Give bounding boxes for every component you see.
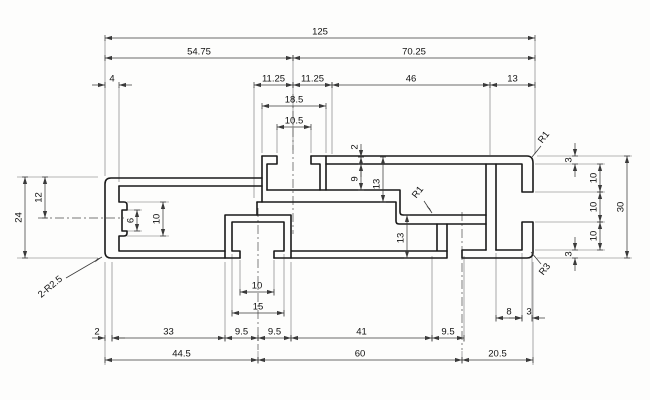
dimension-arrow [286, 83, 293, 87]
dimension-arrow [218, 336, 225, 340]
dim-label-13: 13 [507, 74, 518, 85]
dimension-arrow [598, 222, 602, 229]
radius-label-R1: R1 [410, 184, 426, 200]
dim-label-10: 10 [252, 281, 263, 292]
radius-label-2-R2.5: 2-R2.5 [36, 274, 65, 301]
dim-label-10: 10 [152, 214, 163, 225]
dimension-arrow [432, 336, 439, 340]
dimension-arrow [359, 157, 363, 164]
dimension-arrow [526, 358, 533, 362]
dim-label-10: 10 [589, 231, 600, 242]
dim-label-20.5: 20.5 [488, 349, 507, 360]
dim-label-3: 3 [564, 157, 575, 162]
dimension-arrow [43, 177, 47, 184]
dim-label-44.5: 44.5 [172, 349, 191, 360]
dimension-arrow [258, 336, 265, 340]
dimension-arrow [267, 290, 274, 294]
dimension-arrow [325, 83, 332, 87]
dimension-arrow [598, 243, 602, 250]
dimension-arrow [232, 311, 239, 315]
dimension-arrow [23, 251, 27, 258]
dimension-arrow [455, 358, 462, 362]
dimension-arrow [254, 83, 261, 87]
dimension-arrow [304, 125, 311, 129]
dim-label-9: 9 [350, 176, 361, 181]
dim-label-11.25: 11.25 [262, 74, 285, 85]
dimension-arrow [405, 215, 409, 222]
dimension-arrow [515, 316, 522, 320]
dimension-arrow [277, 311, 284, 315]
profile-outline [105, 156, 533, 258]
radius-label-R3: R3 [537, 261, 553, 277]
dimension-arrow [293, 83, 300, 87]
right-foot-and-bar [462, 222, 533, 258]
profile-drawing-canvas: 12554.7570.25411.2511.25461318.510.51015… [0, 0, 650, 400]
dimension-arrow [135, 210, 139, 217]
dim-label-2: 2 [94, 327, 99, 338]
dimension-arrow [359, 183, 363, 190]
tslot-left-lip [262, 156, 277, 190]
dimension-arrow [573, 149, 577, 156]
dim-label-15: 15 [253, 302, 264, 313]
dim-label-33: 33 [163, 327, 174, 338]
dimension-arrow [225, 336, 232, 340]
dimension-arrow [291, 336, 298, 340]
dimension-arrow [332, 83, 339, 87]
dim-label-4: 4 [109, 74, 114, 85]
dim-label-13: 13 [396, 233, 407, 244]
dimension-arrow [251, 358, 258, 362]
dim-label-18.5: 18.5 [285, 95, 304, 106]
dimension-arrow [319, 104, 326, 108]
dim-label-2: 2 [350, 144, 361, 149]
dim-label-13: 13 [372, 179, 383, 190]
dim-label-9.5: 9.5 [235, 327, 248, 338]
dim-label-41: 41 [356, 327, 367, 338]
dimension-arrow [119, 83, 126, 87]
dimension-arrow [483, 83, 490, 87]
dim-label-46: 46 [406, 74, 417, 85]
dim-label-70.25: 70.25 [402, 47, 426, 58]
dimension-arrow [598, 164, 602, 171]
dim-label-60: 60 [355, 349, 366, 360]
dimension-annotations: 12554.7570.25411.2511.25461318.510.51015… [14, 27, 631, 364]
dimension-arrow [625, 251, 629, 258]
dimension-arrow [462, 358, 469, 362]
dimension-arrow [598, 185, 602, 192]
dim-label-3: 3 [564, 251, 575, 256]
dim-label-12: 12 [34, 192, 45, 203]
dimension-arrow [112, 336, 119, 340]
right-wall-pair [486, 164, 496, 250]
dimension-arrow [528, 83, 535, 87]
dimension-arrow [105, 36, 112, 40]
radius-label-R1: R1 [536, 129, 552, 145]
dim-label-54.75: 54.75 [187, 47, 211, 58]
drawing-sheet: 12554.7570.25411.2511.25461318.510.51015… [0, 0, 650, 400]
dimension-arrow [277, 125, 284, 129]
dimension-arrow [528, 36, 535, 40]
dim-label-8: 8 [506, 307, 511, 318]
dim-label-30: 30 [616, 202, 627, 213]
dimension-arrow [405, 251, 409, 258]
dimension-arrow [528, 56, 535, 60]
dimension-arrow [240, 290, 247, 294]
dimension-arrow [258, 358, 265, 362]
dimension-arrow [573, 243, 577, 250]
dimension-arrow [381, 195, 385, 202]
dimension-arrow [490, 83, 497, 87]
dimension-arrow [251, 336, 258, 340]
dim-label-3: 3 [526, 307, 531, 318]
top-plate [326, 156, 533, 192]
dimension-arrow [293, 56, 300, 60]
bottom-box [225, 215, 447, 258]
dimension-arrow [161, 229, 165, 236]
dim-label-125: 125 [312, 27, 328, 38]
dim-label-9.5: 9.5 [268, 327, 281, 338]
dimension-arrow [23, 177, 27, 184]
dimension-arrow [457, 336, 464, 340]
dimension-arrow [598, 192, 602, 199]
dim-label-11.25: 11.25 [301, 74, 324, 85]
dimension-arrow [425, 336, 432, 340]
tslot-right-lip [311, 156, 320, 190]
dimension-arrow [105, 358, 112, 362]
dimension-arrow [284, 336, 291, 340]
dimension-arrow [98, 83, 105, 87]
dimension-arrow [262, 104, 269, 108]
dim-label-10: 10 [589, 202, 600, 213]
dimension-arrow [105, 56, 112, 60]
dimension-arrow [286, 56, 293, 60]
dimension-arrow [496, 316, 503, 320]
extension-lines-left [17, 177, 169, 258]
tslot-right-wall [311, 156, 326, 190]
dimension-arrow [135, 224, 139, 231]
dim-label-24: 24 [14, 212, 25, 223]
dim-label-6: 6 [126, 218, 137, 223]
dimension-arrow [43, 211, 47, 218]
dimension-arrow [161, 202, 165, 209]
extension-lines-bottom [105, 253, 533, 365]
dim-label-9.5: 9.5 [441, 327, 454, 338]
dim-label-10.5: 10.5 [285, 116, 304, 127]
dimension-arrow [598, 215, 602, 222]
bottom-plate [274, 251, 447, 258]
dimension-arrow [625, 156, 629, 163]
dim-label-10: 10 [589, 173, 600, 184]
dimension-arrow [573, 258, 577, 265]
dimension-arrow [573, 164, 577, 171]
dimension-arrow [381, 157, 385, 164]
